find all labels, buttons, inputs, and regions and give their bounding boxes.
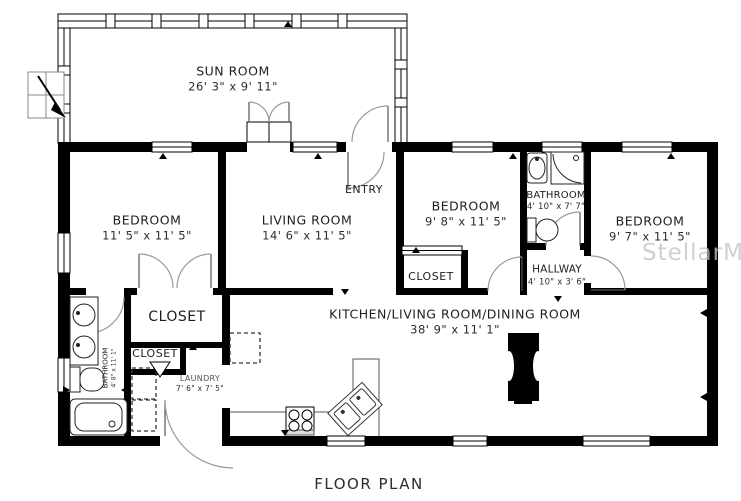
fireplace	[504, 333, 543, 404]
sink-icon	[73, 304, 95, 326]
room-name: BATHROOM	[102, 348, 111, 389]
toilet-tank	[527, 218, 536, 242]
room-dims: 11' 5" x 11' 5"	[102, 229, 192, 244]
room-dims: 9' 8" x 11' 5"	[425, 215, 507, 230]
closet-label-bedroom-middle: CLOSET	[408, 270, 454, 284]
room-label-sun-room: SUN ROOM 26' 3" x 9' 11"	[188, 63, 278, 94]
closet-label-small: CLOSET	[132, 347, 178, 361]
room-dims: 26' 3" x 9' 11"	[188, 80, 278, 95]
dryer	[132, 400, 156, 431]
room-label-kitchen-living-dining: KITCHEN/LIVING ROOM/DINING ROOM 38' 9" x…	[329, 306, 581, 337]
bedroom-right-door	[591, 256, 625, 290]
sink-icon	[73, 336, 95, 358]
toilet-bowl	[80, 368, 104, 391]
room-name: LAUNDRY	[176, 374, 224, 384]
entry-label: ENTRY	[345, 183, 383, 197]
floor-plan-drawing	[0, 0, 741, 501]
toilet-bowl	[536, 219, 558, 241]
room-label-bedroom-left: BEDROOM 11' 5" x 11' 5"	[102, 212, 192, 243]
page-title: FLOOR PLAN	[314, 475, 423, 493]
room-dims: 38' 9" x 11' 1"	[329, 323, 581, 338]
floor-plan-canvas: SUN ROOM 26' 3" x 9' 11" ENTRY BEDROOM 1…	[0, 0, 741, 501]
room-dims: 4' 10" x 7' 7"	[526, 202, 585, 213]
kitchen-sink	[328, 382, 382, 435]
watermark: StellarMLS	[642, 240, 741, 266]
room-dims: 7' 6" x 7' 5"	[176, 384, 224, 394]
room-label-living-room: LIVING ROOM 14' 6" x 11' 5"	[262, 212, 353, 243]
ac-unit	[28, 72, 66, 118]
refrigerator	[230, 333, 260, 363]
bedroom-middle-door	[488, 257, 522, 291]
room-label-bedroom-middle: BEDROOM 9' 8" x 11' 5"	[425, 198, 507, 229]
room-name: BEDROOM	[609, 213, 691, 229]
stove	[286, 407, 314, 435]
room-name: LIVING ROOM	[262, 212, 353, 228]
room-name: HALLWAY	[528, 264, 586, 278]
room-dims: 4' 8" x 11' 1"	[111, 348, 119, 389]
room-name: BEDROOM	[102, 212, 192, 228]
closet-label-large: CLOSET	[148, 308, 205, 326]
entry-doors	[348, 106, 388, 188]
room-label-bathroom-hall: BATHROOM 4' 10" x 7' 7"	[526, 189, 585, 213]
room-name: SUN ROOM	[188, 63, 278, 79]
room-label-laundry: LAUNDRY 7' 6" x 7' 5"	[176, 374, 224, 394]
sun-room-double-door	[249, 102, 289, 122]
room-name: BATHROOM	[526, 189, 585, 202]
room-label-hallway: HALLWAY 4' 10" x 3' 6"	[528, 264, 586, 289]
room-name: KITCHEN/LIVING ROOM/DINING ROOM	[329, 306, 581, 322]
drain-icon	[109, 421, 115, 427]
bedroom-left-doors	[139, 254, 211, 288]
room-dims: 14' 6" x 11' 5"	[262, 229, 353, 244]
room-name: BEDROOM	[425, 198, 507, 214]
shower-drain-icon	[574, 156, 579, 161]
room-dims: 4' 10" x 3' 6"	[528, 277, 586, 288]
toilet-tank	[70, 367, 80, 392]
room-label-bathroom-primary: BATHROOM 4' 8" x 11' 1"	[102, 348, 119, 389]
